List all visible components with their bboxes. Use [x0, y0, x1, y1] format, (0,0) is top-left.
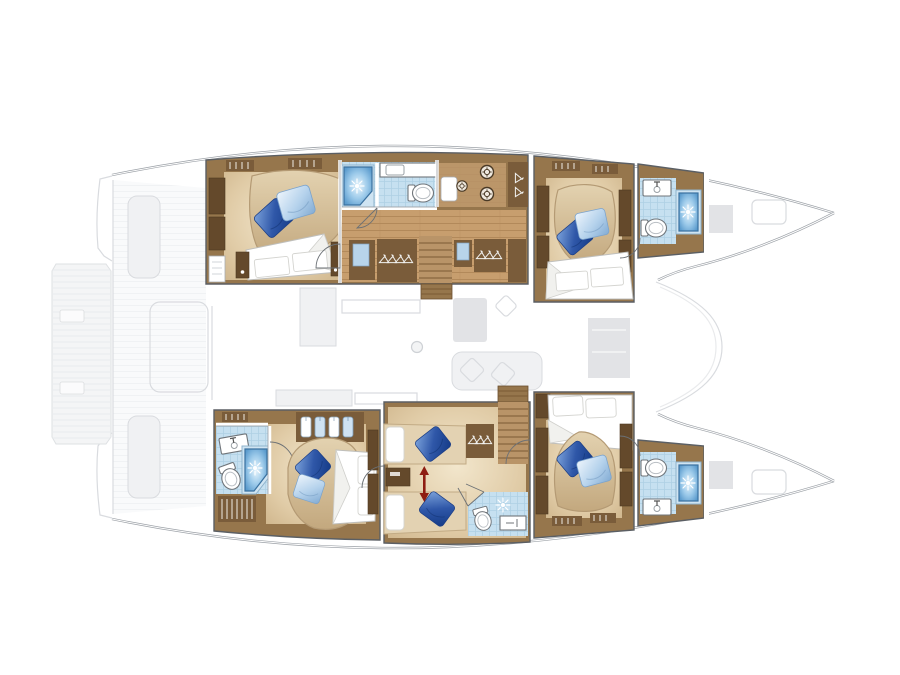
burner-icon: [481, 188, 494, 201]
coachroof-front: [656, 282, 722, 412]
hanging-locker: [377, 239, 417, 282]
bow-bulkhead: [704, 444, 709, 520]
shirt-icon: [301, 417, 311, 437]
shirt-icon: [315, 417, 325, 437]
starboard-aft-suite: [214, 410, 380, 540]
nightstand: [386, 468, 410, 486]
port-aft-suite: [206, 152, 582, 299]
galley-block-left: [300, 288, 336, 346]
transom-step-top: [97, 176, 112, 261]
head-pillow: [386, 427, 404, 462]
shower-spray-icon: [681, 205, 695, 219]
head-pillow: [586, 398, 617, 418]
port-aft-cabin: [209, 158, 344, 282]
toilet-icon: [641, 219, 667, 237]
floor-plan-page: [0, 0, 900, 675]
shower-spray-icon: [681, 476, 695, 490]
floor-plan-canvas: [0, 0, 900, 675]
head-pillow: [386, 495, 404, 530]
port-forward-cabin: [534, 156, 634, 302]
foredeck-hatch-top: [708, 205, 733, 233]
mirror-cabinet: [349, 240, 375, 280]
swim-platform: [52, 264, 112, 444]
sink-icon: [643, 499, 671, 515]
hanging-locker: [508, 162, 528, 207]
hanging-locker: [474, 239, 506, 272]
shower-stall: [676, 462, 701, 504]
nightstand: [236, 252, 249, 278]
starboard-aft-cabin-bed: [288, 438, 377, 529]
transom-step-bottom: [97, 433, 112, 518]
cockpit-bench-bottom: [128, 416, 160, 498]
nav-island-block: [588, 318, 630, 378]
galley-counter: [439, 163, 506, 207]
toilet-icon: [408, 184, 434, 202]
starboard-midship-cabin: [362, 386, 530, 544]
saloon-sofa: [452, 352, 542, 390]
locker: [508, 239, 526, 282]
toilet-icon: [641, 459, 667, 477]
shower-spray-icon: [248, 461, 262, 475]
shower-spray-icon: [496, 498, 510, 512]
pillow-icon: [574, 208, 609, 240]
sink-icon: [643, 180, 671, 196]
bow-locker-top: [752, 200, 786, 224]
coachroof-front-inner: [660, 287, 716, 407]
galley-front-counter: [276, 390, 352, 406]
burner-icon: [457, 181, 467, 191]
twin-bed-top: [384, 424, 466, 464]
bow-bulkhead: [704, 170, 709, 256]
shirt-icon: [329, 417, 339, 437]
cockpit-bench-top: [128, 196, 160, 278]
sink-icon: [441, 177, 457, 201]
stairs-icon: [498, 386, 528, 464]
head-pillow: [553, 396, 584, 417]
saloon-table: [453, 298, 487, 342]
hanging-locker: [466, 424, 494, 458]
port-hull-cabins: [206, 152, 709, 302]
galley-back-counter: [342, 300, 420, 313]
shower-spray-icon: [350, 179, 364, 193]
bow-locker-bottom: [752, 470, 786, 494]
foredeck-hatch-bottom: [708, 461, 733, 489]
louvered-locker: [218, 496, 256, 522]
shirt-icon: [343, 417, 353, 437]
mast-icon: [412, 342, 423, 353]
starboard-hull-cabins: [214, 386, 709, 544]
burner-icon: [481, 166, 494, 179]
sofa-cushion-3: [495, 295, 518, 318]
shower-stall: [342, 165, 374, 207]
shower-stall: [676, 190, 701, 234]
mirror-cabinet: [454, 240, 472, 267]
stairs-icon: [419, 236, 452, 299]
